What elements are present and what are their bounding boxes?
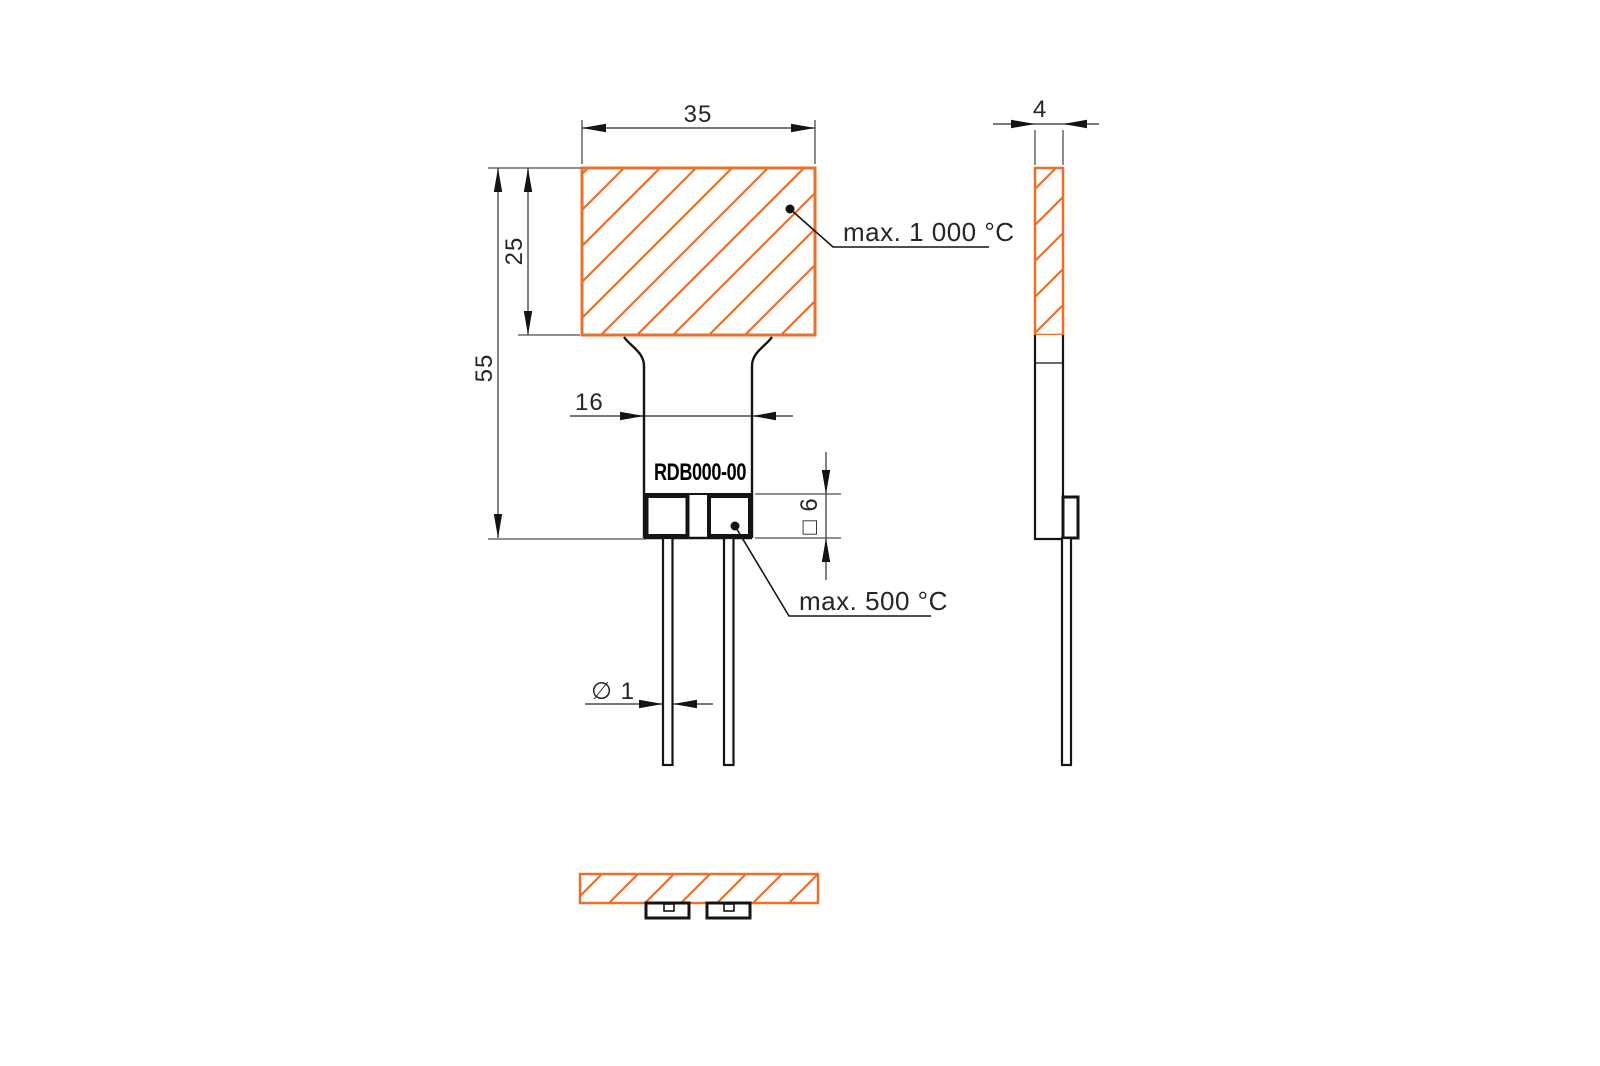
arrowhead	[582, 124, 606, 132]
drawing-sheet: 35 25 55 16 □ 6 ∅ 1	[0, 0, 1600, 1066]
arrowhead	[1011, 120, 1035, 128]
wire-right	[724, 538, 734, 765]
bottom-view	[580, 874, 818, 918]
sensor-head-hatched	[582, 168, 815, 335]
arrowhead	[752, 412, 776, 420]
arrowhead	[639, 700, 663, 708]
terminal-right	[709, 496, 750, 536]
arrowhead	[494, 514, 502, 538]
dim-text-total-height: 55	[471, 354, 498, 383]
head-bottom-hatched	[580, 874, 818, 903]
label-max-head-temp: max. 1 000 °C	[843, 217, 1015, 247]
dim-text-neck-width: 16	[575, 389, 604, 416]
arrowhead	[620, 412, 644, 420]
arrowhead	[524, 311, 532, 335]
arrowhead	[494, 168, 502, 192]
dim-text-wire-diameter: ∅ 1	[591, 678, 635, 705]
arrowhead	[1063, 120, 1087, 128]
dim-text-terminal-size: □ 6	[796, 497, 823, 535]
wire-section-right	[724, 904, 734, 911]
front-view: 35 25 55 16 □ 6 ∅ 1	[471, 101, 1015, 765]
dim-text-head-width: 35	[684, 101, 713, 128]
arrowhead	[524, 168, 532, 192]
arrowhead	[822, 470, 830, 494]
technical-drawing: 35 25 55 16 □ 6 ∅ 1	[0, 0, 1600, 1066]
dim-text-head-height: 25	[501, 237, 528, 266]
side-view: 4	[993, 96, 1099, 765]
dim-text-thickness: 4	[1033, 96, 1047, 123]
neck-outline-left	[624, 337, 644, 538]
neck-outline-right	[752, 337, 772, 538]
label-max-terminal-temp: max. 500 °C	[799, 586, 948, 616]
wire-left	[663, 538, 673, 765]
terminal-left	[647, 496, 688, 536]
arrowhead	[822, 538, 830, 562]
terminal-side	[1063, 497, 1078, 538]
wire-side	[1062, 538, 1071, 765]
wire-section-left	[664, 904, 674, 911]
part-number-label: RDB000-00	[654, 459, 746, 486]
body-side-outline	[1035, 335, 1063, 539]
arrowhead	[673, 700, 697, 708]
sensor-head-side-hatched	[1035, 168, 1063, 335]
arrowhead	[791, 124, 815, 132]
